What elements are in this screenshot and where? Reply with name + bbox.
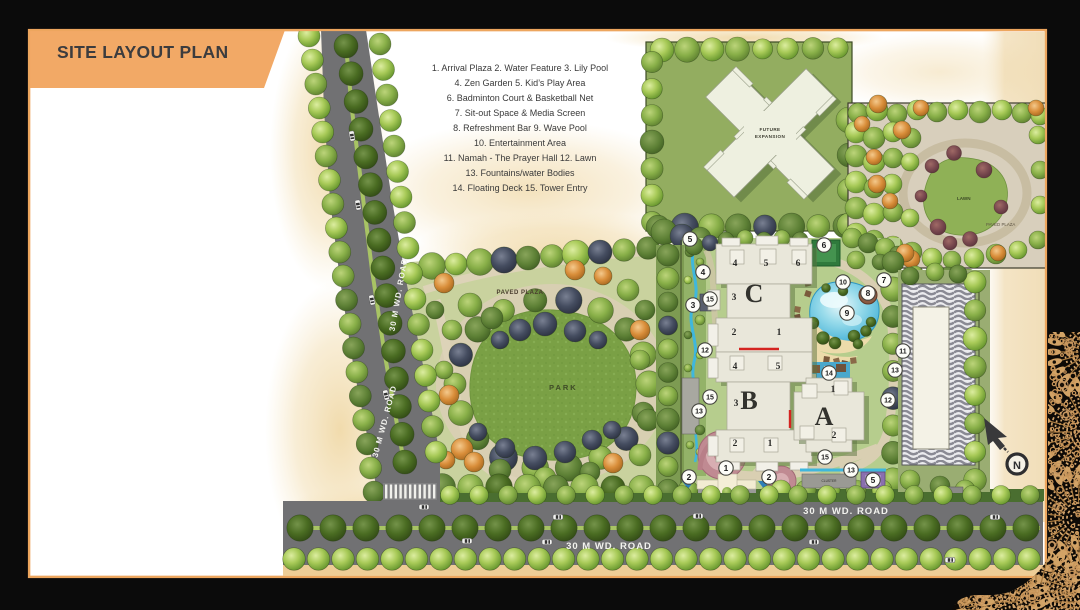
svg-text:13: 13 (891, 368, 899, 375)
svg-text:6: 6 (822, 240, 827, 250)
svg-text:A: A (815, 402, 834, 431)
svg-text:PARK: PARK (549, 383, 578, 392)
svg-text:30 M WD. ROAD: 30 M WD. ROAD (566, 541, 652, 552)
svg-text:3: 3 (734, 399, 739, 409)
svg-text:13: 13 (695, 409, 703, 416)
svg-text:2: 2 (832, 431, 837, 441)
svg-text:LAWN: LAWN (957, 196, 971, 201)
svg-text:6: 6 (796, 259, 801, 269)
svg-text:5: 5 (688, 234, 693, 244)
svg-text:14: 14 (825, 371, 833, 378)
svg-text:15: 15 (706, 395, 714, 402)
svg-text:1: 1 (831, 385, 836, 395)
svg-text:15: 15 (706, 297, 714, 304)
svg-text:N: N (1013, 460, 1021, 472)
svg-text:10. Entertainment Area: 10. Entertainment Area (474, 138, 566, 148)
svg-text:12: 12 (701, 348, 709, 355)
svg-text:4. Zen Garden 5. Kid’s Play Ar: 4. Zen Garden 5. Kid’s Play Area (455, 78, 586, 88)
svg-text:4: 4 (733, 362, 738, 372)
svg-text:4: 4 (733, 259, 738, 269)
svg-text:PAVED PLAZA: PAVED PLAZA (986, 222, 1015, 227)
svg-text:EXPANSION: EXPANSION (755, 134, 786, 139)
svg-text:8. Refreshment Bar 9. Wave Poo: 8. Refreshment Bar 9. Wave Pool (453, 123, 587, 133)
svg-text:FUTURE: FUTURE (759, 127, 780, 132)
svg-text:7. Sit-out Space & Media Scree: 7. Sit-out Space & Media Screen (455, 108, 586, 118)
svg-text:2: 2 (687, 472, 692, 482)
svg-text:9: 9 (845, 308, 850, 318)
svg-text:B: B (740, 386, 757, 415)
svg-text:15: 15 (821, 455, 829, 462)
svg-text:5: 5 (764, 259, 769, 269)
svg-text:5: 5 (871, 475, 876, 485)
svg-text:12: 12 (884, 398, 892, 405)
svg-text:C: C (745, 279, 764, 308)
svg-text:14. Floating Deck 15. Tower En: 14. Floating Deck 15. Tower Entry (453, 183, 588, 193)
svg-text:6. Badminton Court & Basketbal: 6. Badminton Court & Basketball Net (447, 93, 594, 103)
svg-text:4: 4 (701, 267, 706, 277)
svg-text:13. Fountains/water Bodies: 13. Fountains/water Bodies (465, 168, 575, 178)
svg-text:11: 11 (899, 349, 907, 356)
svg-text:2: 2 (732, 328, 737, 338)
svg-text:SITE LAYOUT PLAN: SITE LAYOUT PLAN (57, 42, 228, 62)
svg-text:1: 1 (768, 439, 773, 449)
svg-text:1. Arrival Plaza 2. Water Feat: 1. Arrival Plaza 2. Water Feature 3. Lil… (432, 63, 608, 73)
svg-text:1: 1 (777, 328, 782, 338)
svg-text:30 M WD. ROAD: 30 M WD. ROAD (803, 506, 889, 517)
svg-text:2: 2 (733, 439, 738, 449)
svg-text:CLUSTER: CLUSTER (822, 479, 838, 483)
svg-text:7: 7 (882, 275, 887, 285)
svg-text:10: 10 (839, 280, 847, 287)
svg-text:3: 3 (691, 300, 696, 310)
svg-text:11. Namah - The Prayer Hall 12: 11. Namah - The Prayer Hall 12. Lawn (444, 153, 597, 163)
svg-text:PAVED PLAZA: PAVED PLAZA (497, 290, 544, 296)
svg-text:13: 13 (847, 468, 855, 475)
svg-text:5: 5 (776, 362, 781, 372)
svg-text:1: 1 (724, 463, 729, 473)
svg-text:3: 3 (732, 293, 737, 303)
svg-text:2: 2 (767, 472, 772, 482)
svg-text:8: 8 (866, 288, 871, 298)
